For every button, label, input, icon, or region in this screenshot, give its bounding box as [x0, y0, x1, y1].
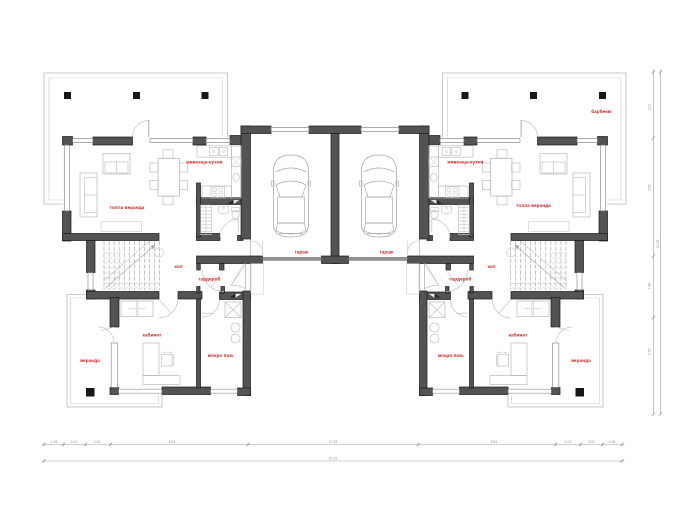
svg-text:17.53: 17.53	[329, 440, 338, 444]
svg-text:гараж: гараж	[295, 250, 309, 255]
svg-text:2.95: 2.95	[648, 349, 652, 356]
svg-text:2.02: 2.02	[94, 440, 101, 444]
svg-text:мокро пом.: мокро пом.	[438, 353, 465, 358]
svg-text:гардероб: гардероб	[199, 276, 221, 282]
svg-text:веранда: веранда	[571, 358, 591, 363]
svg-text:топла веранда: топла веранда	[110, 205, 145, 210]
svg-text:8.81: 8.81	[169, 440, 176, 444]
svg-text:живееща-кухня: живееща-кухня	[185, 160, 222, 165]
svg-text:2.01: 2.01	[648, 104, 652, 111]
svg-text:веранда: веранда	[80, 358, 100, 363]
svg-text:топла веранда: топла веранда	[516, 203, 551, 208]
svg-text:2.01: 2.01	[588, 440, 595, 444]
svg-text:барбекю: барбекю	[591, 108, 612, 114]
svg-text:кабинет: кабинет	[143, 332, 162, 338]
svg-text:2.01: 2.01	[71, 440, 78, 444]
svg-text:гараж: гараж	[380, 250, 394, 255]
svg-text:живееща-кухня: живееща-кухня	[446, 160, 483, 165]
svg-text:29.31: 29.31	[329, 457, 338, 461]
svg-text:хол: хол	[174, 264, 182, 269]
svg-text:1.96: 1.96	[51, 440, 58, 444]
svg-text:гардероб: гардероб	[450, 276, 472, 282]
svg-text:1.96: 1.96	[609, 440, 616, 444]
svg-text:10.39: 10.39	[656, 240, 660, 249]
svg-text:кабинет: кабинет	[509, 332, 528, 338]
svg-text:мокро пом.: мокро пом.	[208, 353, 235, 358]
svg-text:8.81: 8.81	[491, 440, 498, 444]
svg-text:2.02: 2.02	[565, 440, 572, 444]
svg-text:хол: хол	[487, 264, 495, 269]
svg-text:1.88: 1.88	[648, 283, 652, 290]
svg-text:3.55: 3.55	[648, 185, 652, 192]
